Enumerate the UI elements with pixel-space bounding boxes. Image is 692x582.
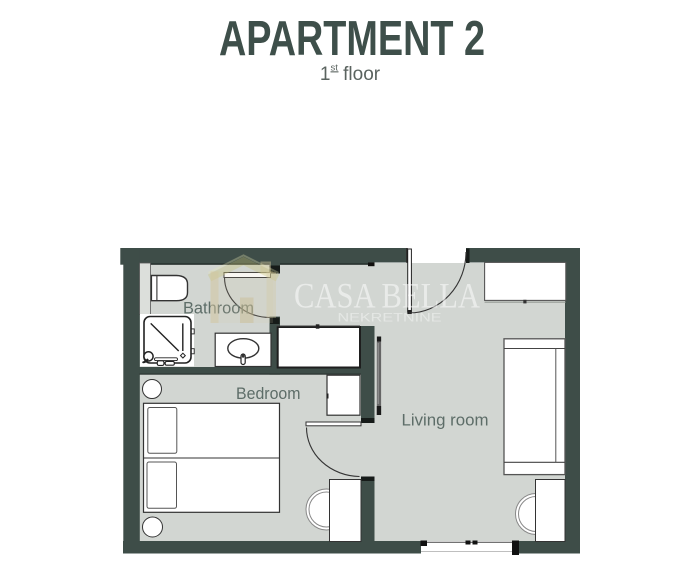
svg-text:CASA BELLA: CASA BELLA (294, 276, 480, 316)
svg-text:Bedroom: Bedroom (236, 385, 301, 403)
svg-text:1st floor: 1st floor (320, 63, 381, 86)
svg-text:APARTMENT 2: APARTMENT 2 (219, 12, 485, 66)
svg-text:Living room: Living room (402, 412, 489, 430)
svg-text:NEKRETNINE: NEKRETNINE (338, 313, 442, 325)
